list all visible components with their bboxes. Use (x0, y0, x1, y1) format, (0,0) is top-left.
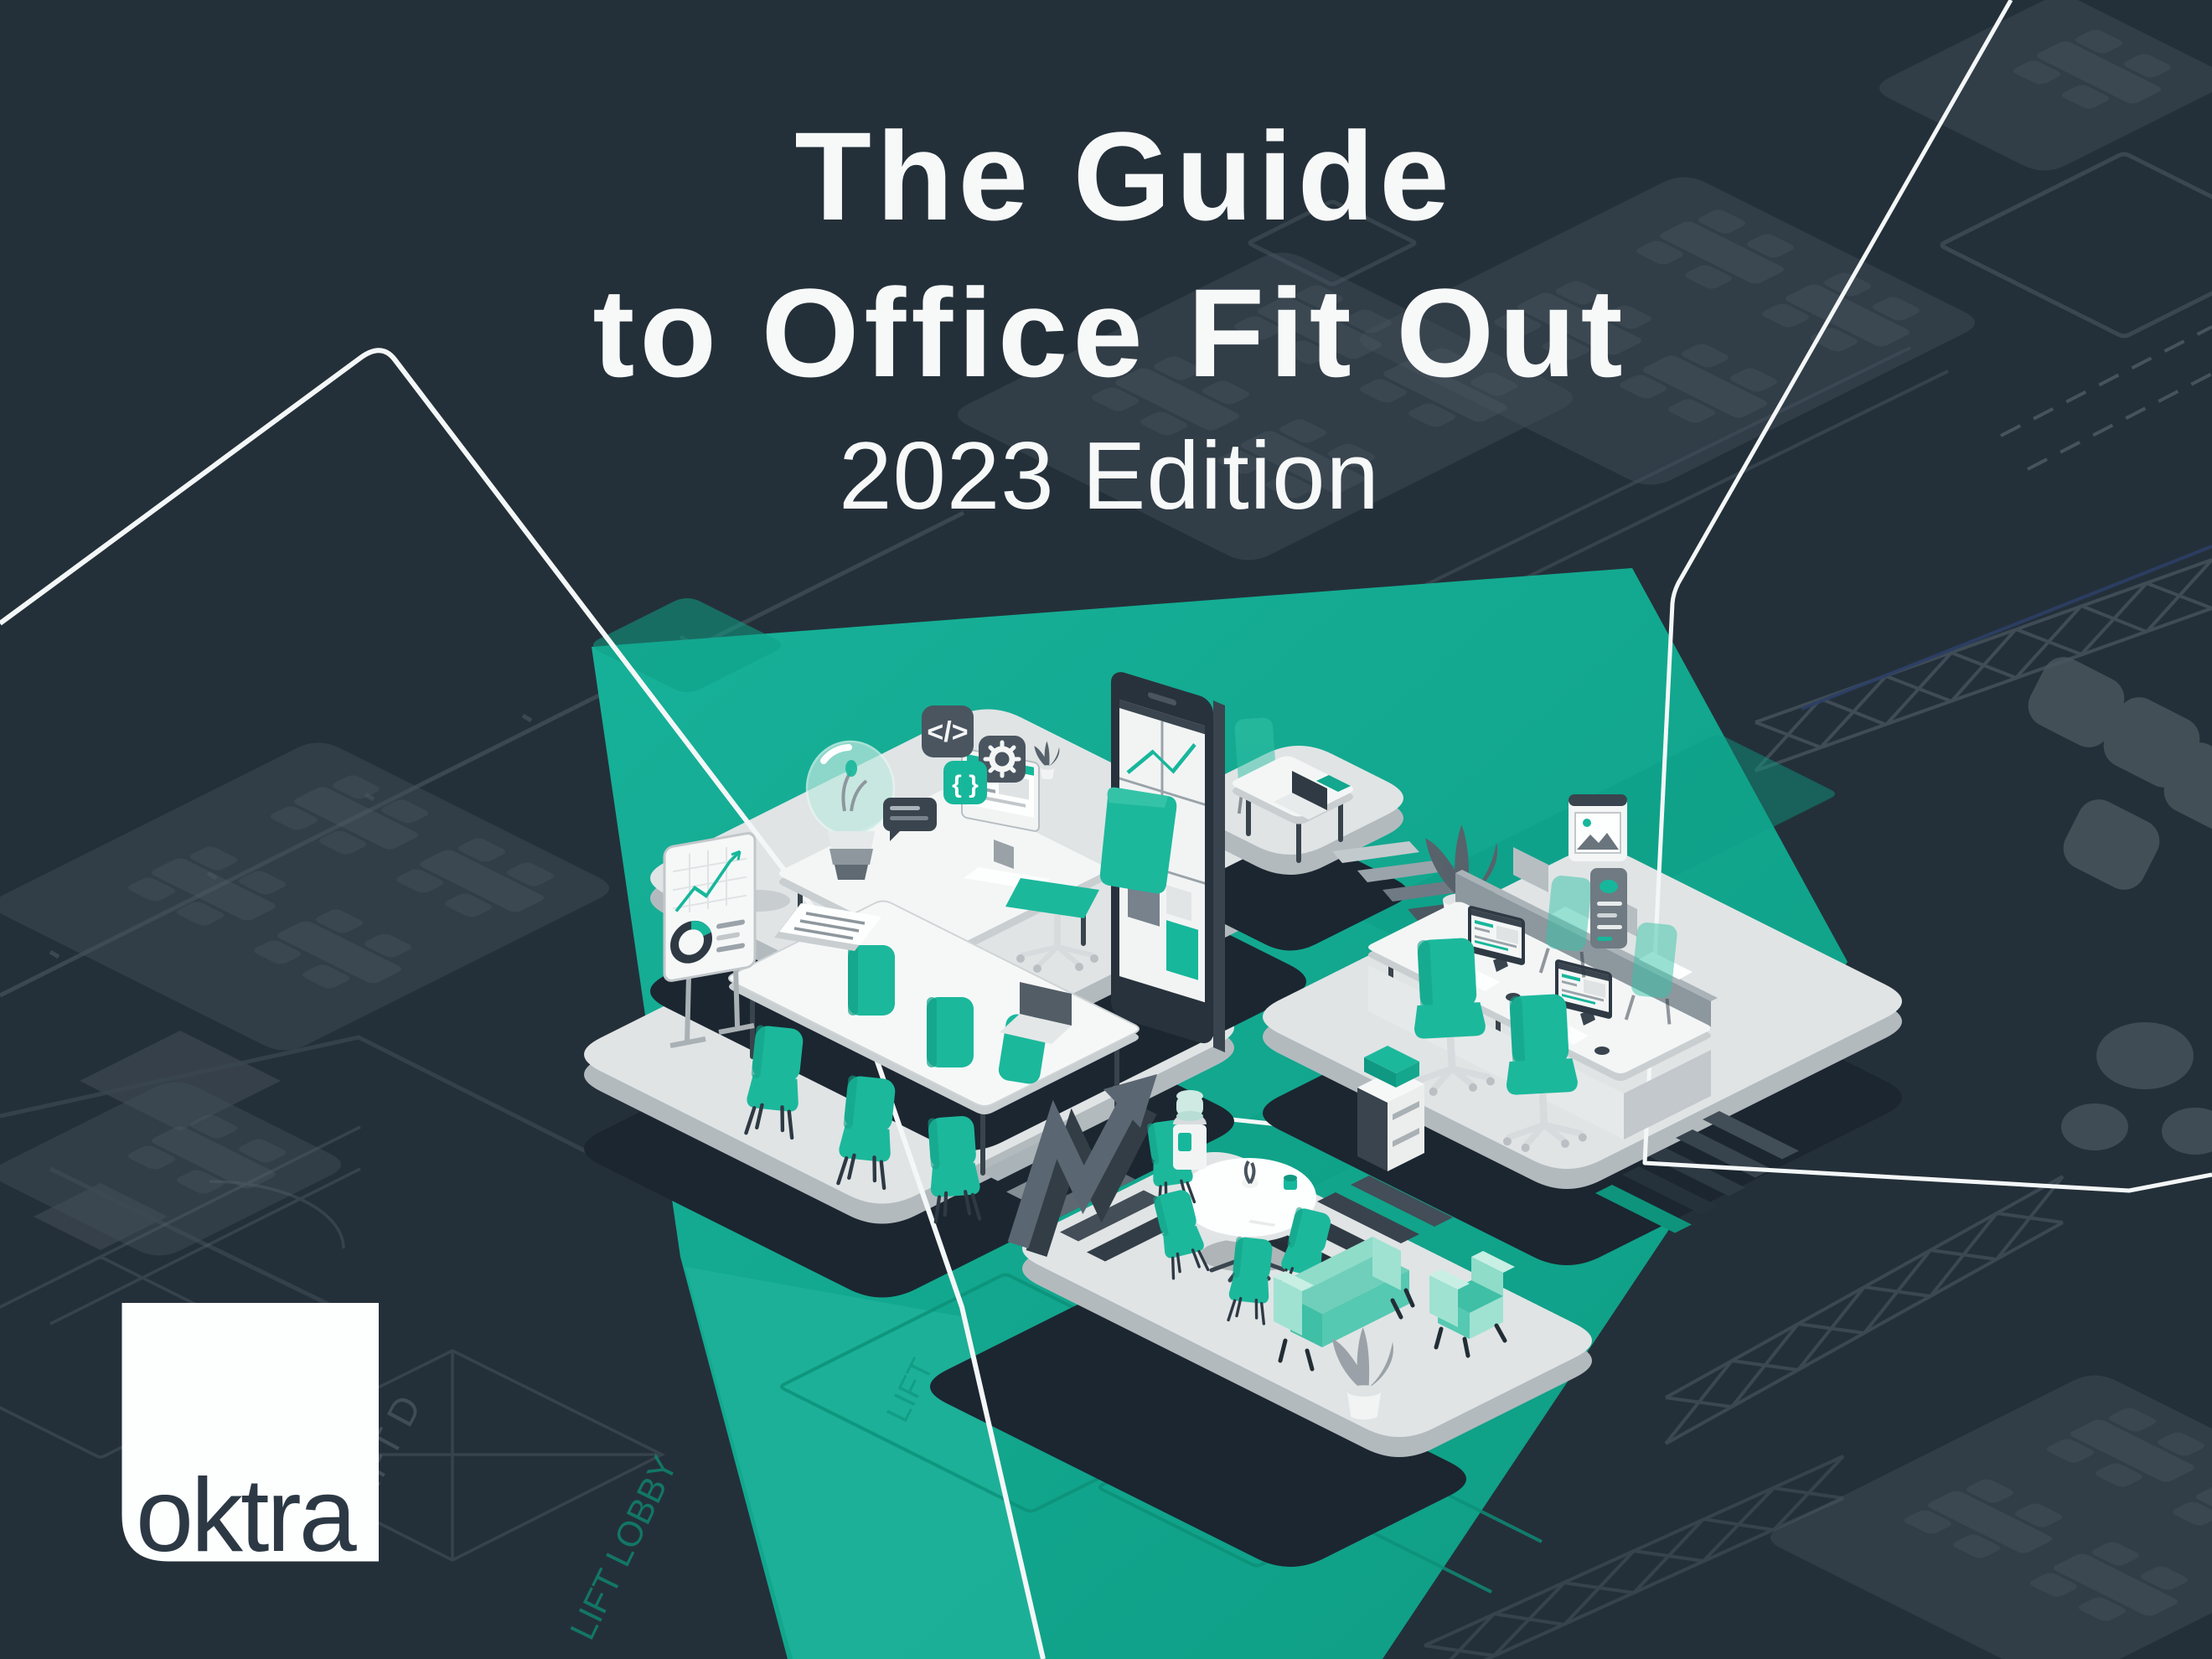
svg-text:</>: </> (927, 716, 968, 748)
svg-text:{ }: { } (952, 771, 979, 798)
svg-text:oktra: oktra (136, 1458, 357, 1574)
svg-text:The Guide: The Guide (794, 106, 1454, 246)
svg-text:to Office Fit Out: to Office Fit Out (592, 262, 1627, 403)
svg-text:2023 Edition: 2023 Edition (839, 423, 1380, 530)
